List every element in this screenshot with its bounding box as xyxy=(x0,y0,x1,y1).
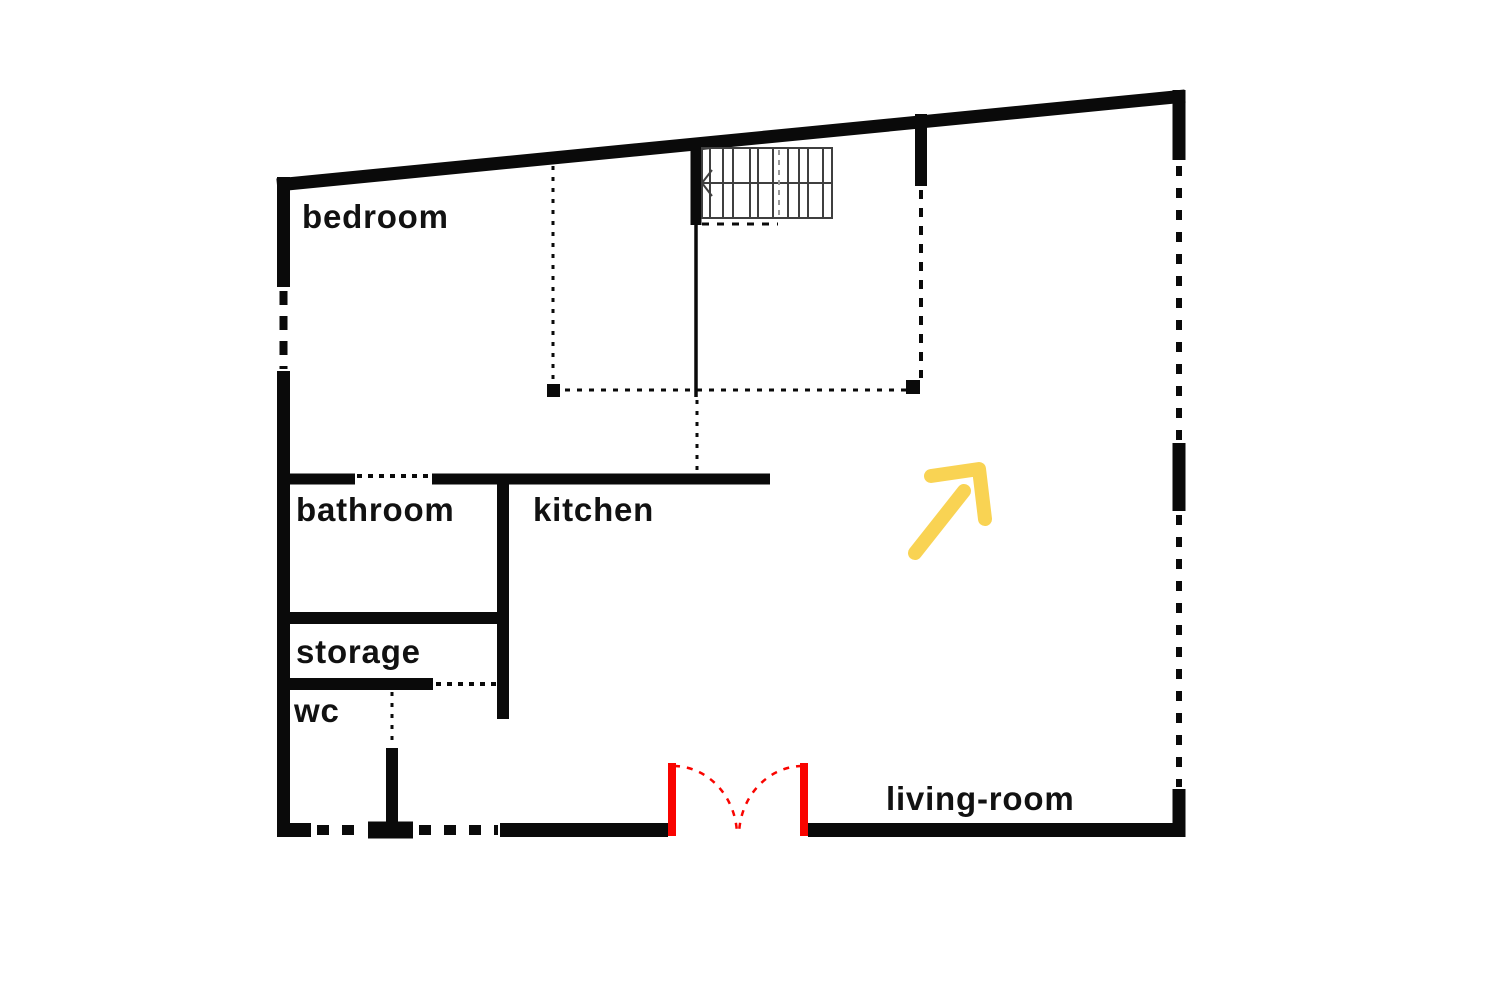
door-leaves xyxy=(668,763,808,836)
room-label-kitchen: kitchen xyxy=(533,491,654,528)
room-label-storage: storage xyxy=(296,633,421,670)
column-marker-left xyxy=(547,384,560,397)
door-swing-arc-right xyxy=(739,766,802,835)
direction-arrow-shaft xyxy=(915,491,964,553)
floor-plan-drawing: bedroom bathroom kitchen storage wc livi… xyxy=(0,0,1500,1000)
door-swing-arcs xyxy=(674,766,802,835)
wall-top-slanted xyxy=(277,96,1185,185)
direction-arrow-icon xyxy=(915,469,985,553)
dotted-guide-lines xyxy=(357,166,921,742)
double-door-icon xyxy=(668,763,808,836)
staircase-icon xyxy=(702,148,832,218)
door-leaf-left xyxy=(668,763,676,836)
door-leaf-right xyxy=(800,763,808,836)
room-label-wc: wc xyxy=(293,692,340,729)
door-swing-arc-left xyxy=(674,766,737,835)
column-marker-right xyxy=(906,380,920,394)
room-label-bedroom: bedroom xyxy=(302,198,449,235)
room-label-bathroom: bathroom xyxy=(296,491,455,528)
floor-plan-canvas: bedroom bathroom kitchen storage wc livi… xyxy=(0,0,1500,1000)
room-label-living-room: living-room xyxy=(886,780,1074,817)
